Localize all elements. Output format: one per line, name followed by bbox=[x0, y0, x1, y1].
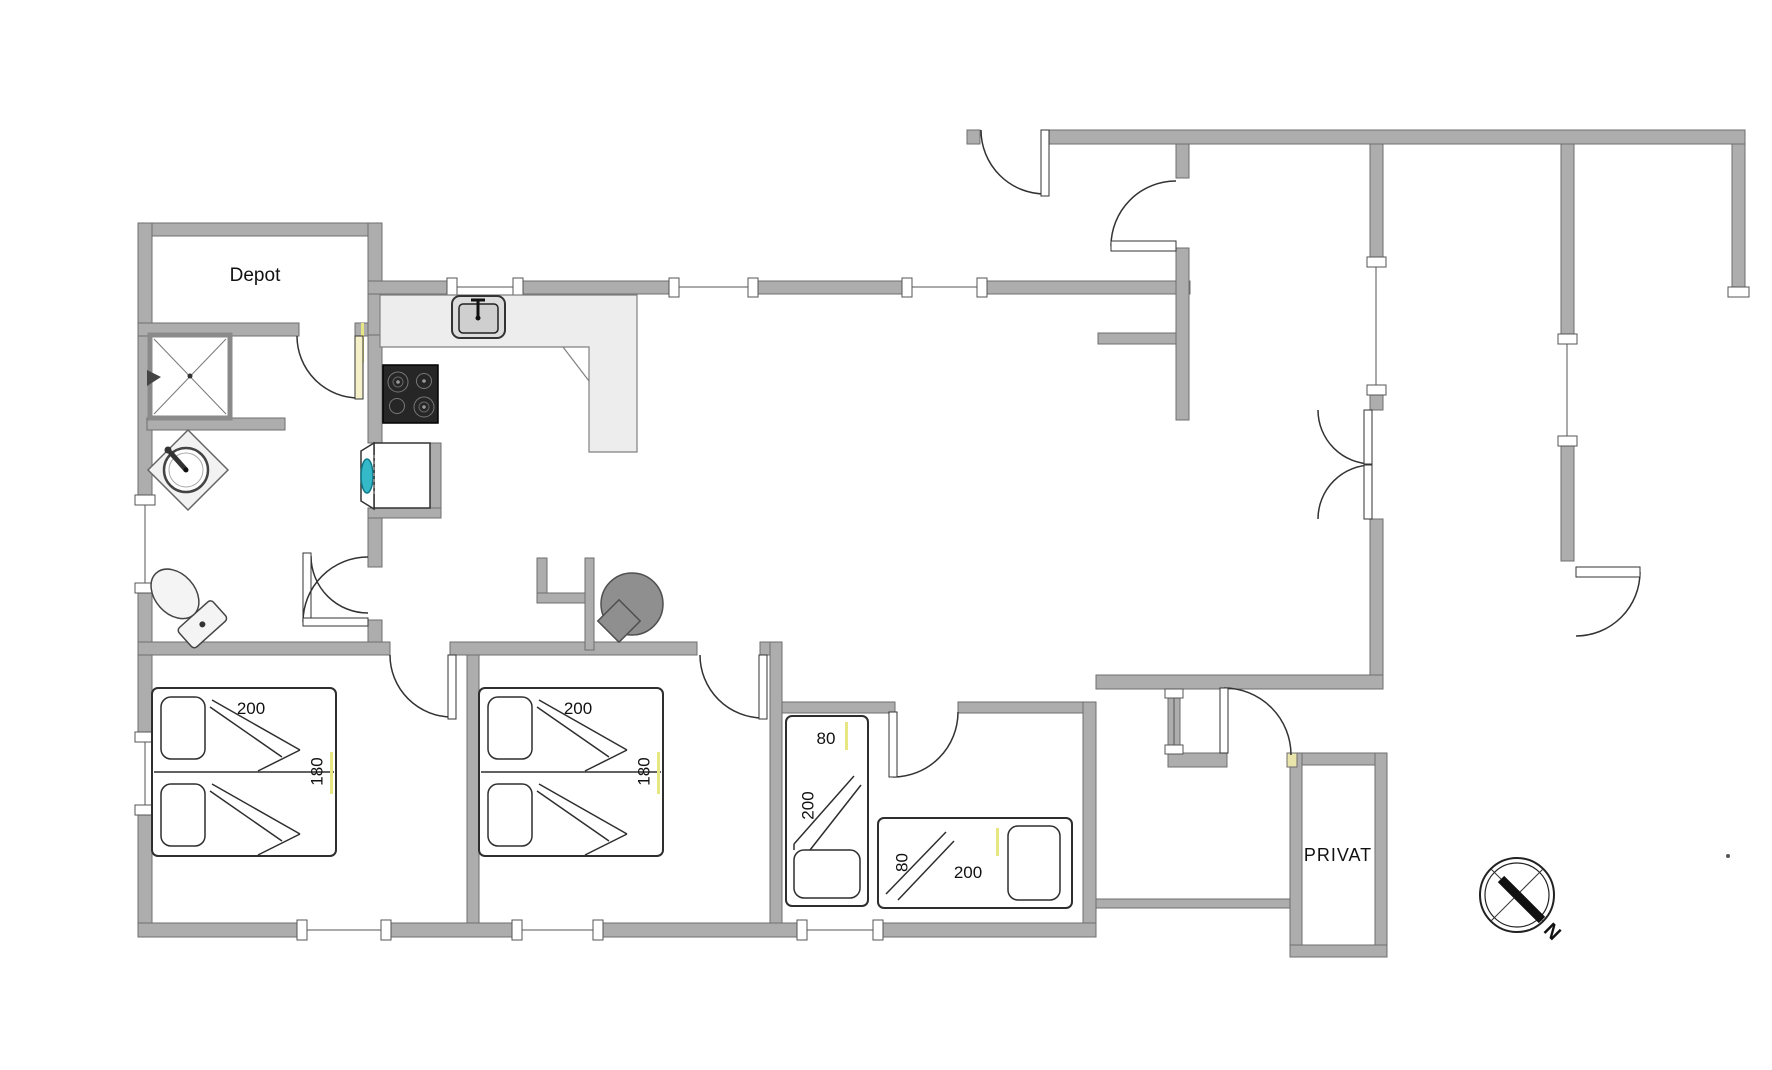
privat-room-label: PRIVAT bbox=[1296, 846, 1380, 864]
bed1-width-label: 200 bbox=[227, 700, 275, 717]
door-swings bbox=[297, 130, 1640, 777]
floor-plan: Depot 200 180 200 180 80 200 80 200 PRIV… bbox=[0, 0, 1772, 1070]
kitchen-sink-icon bbox=[452, 296, 505, 338]
depot-room-label: Depot bbox=[210, 266, 300, 285]
washbasin-icon bbox=[148, 430, 228, 510]
bed4-length-label: 200 bbox=[944, 864, 992, 881]
bed1-length-label: 180 bbox=[309, 748, 326, 796]
plan-dot-mark bbox=[1726, 854, 1730, 858]
bed2-width-label: 200 bbox=[554, 700, 602, 717]
wood-stove-icon bbox=[537, 558, 663, 650]
washing-machine-icon bbox=[361, 443, 430, 509]
bed2-length-label: 180 bbox=[636, 748, 653, 796]
bed3-length-label: 200 bbox=[800, 782, 817, 830]
bed4-width-label: 80 bbox=[894, 839, 911, 887]
floor-plan-drawing bbox=[0, 0, 1772, 1070]
cooktop-icon bbox=[383, 365, 438, 423]
bed3-width-label: 80 bbox=[802, 730, 850, 747]
shower-icon bbox=[147, 335, 230, 418]
